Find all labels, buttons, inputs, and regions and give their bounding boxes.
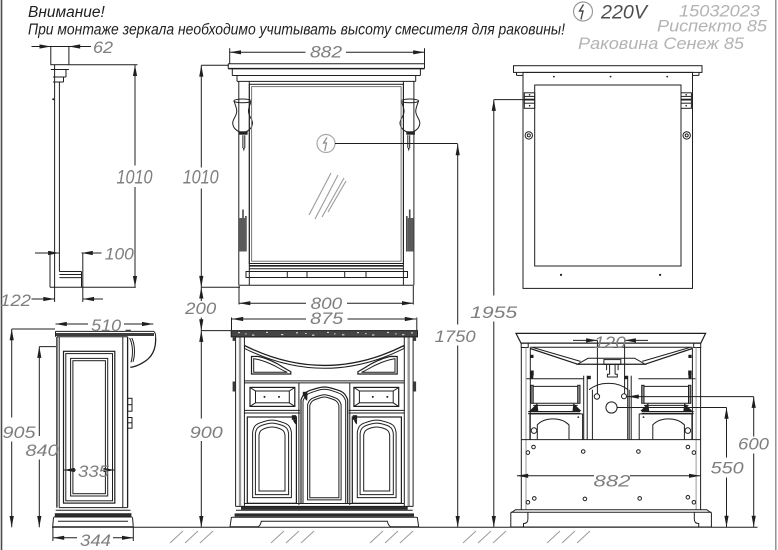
svg-text:335: 335 bbox=[78, 462, 110, 481]
svg-text:900: 900 bbox=[190, 423, 224, 442]
svg-text:344: 344 bbox=[80, 531, 111, 550]
svg-text:882: 882 bbox=[310, 43, 343, 62]
svg-text:1955: 1955 bbox=[470, 303, 518, 322]
svg-text:840: 840 bbox=[26, 441, 60, 460]
svg-text:122: 122 bbox=[0, 291, 32, 310]
svg-text:120: 120 bbox=[594, 333, 627, 352]
svg-text:875: 875 bbox=[310, 309, 344, 328]
svg-text:550: 550 bbox=[711, 459, 745, 478]
svg-text:62: 62 bbox=[93, 38, 114, 57]
svg-text:1010: 1010 bbox=[183, 167, 219, 189]
svg-text:Раковина Сенеж 85: Раковина Сенеж 85 bbox=[578, 34, 745, 53]
svg-text:220V: 220V bbox=[600, 3, 649, 24]
svg-text:882: 882 bbox=[594, 472, 632, 491]
svg-text:Риспекто 85: Риспекто 85 bbox=[657, 17, 768, 36]
svg-text:При монтаже зеркала необходимо: При монтаже зеркала необходимо учитывать… bbox=[28, 22, 566, 39]
svg-text:100: 100 bbox=[105, 245, 135, 264]
svg-text:510: 510 bbox=[91, 316, 122, 335]
svg-text:Внимание!: Внимание! bbox=[28, 4, 106, 21]
svg-text:600: 600 bbox=[738, 435, 770, 454]
svg-text:905: 905 bbox=[3, 423, 37, 442]
svg-text:1750: 1750 bbox=[435, 327, 477, 346]
svg-text:200: 200 bbox=[184, 299, 217, 318]
svg-text:1010: 1010 bbox=[117, 167, 153, 189]
